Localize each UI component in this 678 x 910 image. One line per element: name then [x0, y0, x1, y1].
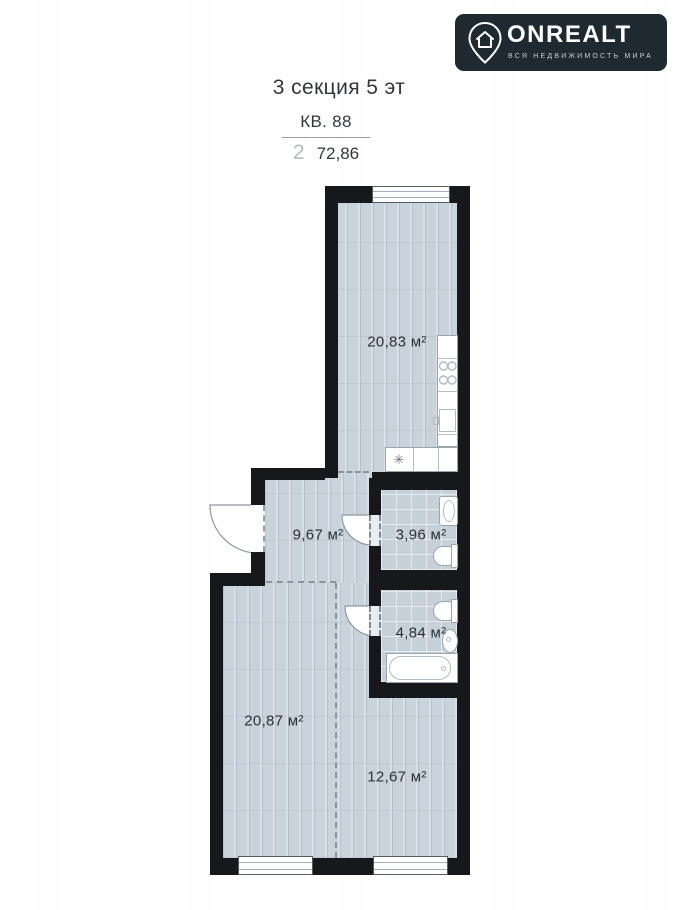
window-top: [372, 186, 450, 203]
wall-bottom-left: [210, 858, 238, 875]
room-count: 2: [293, 141, 305, 165]
kitchen-hallway-opening-dashes: [338, 471, 369, 473]
floorplan-page: ONREALT ВСЯ НЕДВИЖИМОСТЬ МИРА 3 секция 5…: [0, 0, 678, 910]
wall-hallway-top: [257, 468, 325, 480]
bathroom-small-toilet-icon: [433, 546, 452, 566]
area-label-bathroom-large: 4,84 м²: [396, 625, 447, 642]
area-label-room-left: 20,87 м²: [244, 713, 303, 730]
wall-corridor-lower: [369, 546, 381, 570]
bathroom-small-door-opening: [369, 515, 381, 546]
wall-room-left: [210, 573, 223, 875]
bathroom-large-toilet-icon: [433, 601, 452, 621]
onrealt-pin-house-icon: [468, 22, 502, 64]
wall-bathroom-large-bottom: [369, 682, 470, 698]
fridge-icon: ✳: [389, 450, 409, 470]
kitchen-sink-icon: [439, 409, 456, 432]
total-area: 72,86: [317, 144, 360, 164]
area-label-hallway: 9,67 м²: [293, 527, 344, 544]
logo-brand-text: ONREALT: [507, 21, 632, 49]
apartment-info-block: КВ. 88 2 72,86: [282, 112, 370, 165]
wall-kitchen-left: [325, 186, 338, 478]
logo-tagline-text: ВСЯ НЕДВИЖИМОСТЬ МИРА: [508, 53, 653, 60]
wall-hallway-left-upper: [251, 468, 265, 505]
wall-corridor-upper: [369, 478, 381, 515]
wall-between-bathrooms: [369, 570, 470, 590]
area-label-bathroom-small: 3,96 м²: [396, 527, 447, 544]
onrealt-logo-badge: ONREALT ВСЯ НЕДВИЖИМОСТЬ МИРА: [455, 14, 667, 71]
area-label-room-right: 12,67 м²: [367, 769, 426, 786]
bathroom-small-sink-basin: [443, 500, 455, 522]
apartment-divider-line: [282, 137, 370, 138]
stove-icon: [437, 357, 458, 390]
bathroom-small-toilet-tank: [451, 544, 458, 568]
bathroom-large-door-opening: [369, 606, 381, 636]
apartment-summary-row: 2 72,86: [282, 141, 370, 165]
wall-bottom-right: [448, 858, 470, 875]
wall-kitchen-bottom: [372, 472, 470, 490]
kitchen-sink-handle: [433, 417, 439, 425]
window-bottom-left: [238, 856, 313, 875]
zone-divider-dashes: [335, 583, 337, 858]
wall-right: [457, 186, 470, 875]
entry-door-opening: [251, 505, 265, 552]
wall-bottom-middle: [313, 858, 373, 875]
page-title: 3 секция 5 эт: [0, 76, 678, 100]
wall-bathroom-large-left-upper: [369, 590, 381, 606]
wall-hallway-left-lower: [251, 552, 265, 575]
hallway-living-opening-dashes: [266, 581, 336, 583]
apartment-number: КВ. 88: [282, 112, 370, 132]
bathtub-drain: [441, 666, 446, 671]
bathroom-large-toilet-tank: [451, 599, 458, 623]
area-label-kitchen-living: 20,83 м²: [367, 334, 426, 351]
bathroom-large-sink-drain: [446, 637, 451, 642]
window-bottom-right: [373, 856, 448, 875]
